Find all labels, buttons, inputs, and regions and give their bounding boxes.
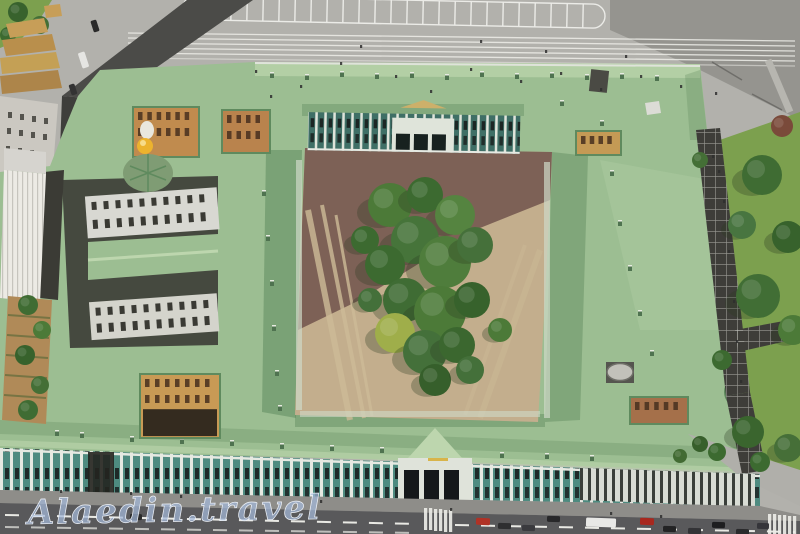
tree-highlight xyxy=(778,438,791,451)
window xyxy=(635,402,640,410)
window xyxy=(185,379,190,387)
window xyxy=(138,112,143,120)
tree-highlight xyxy=(412,182,428,198)
tree-highlight xyxy=(374,189,394,209)
tree-highlight xyxy=(736,420,750,434)
tree-highlight xyxy=(33,378,41,386)
vehicle xyxy=(547,516,560,522)
window xyxy=(166,128,171,136)
west-courtyard xyxy=(62,176,220,348)
vehicle xyxy=(757,523,769,529)
vehicle xyxy=(736,529,749,534)
pedestrian xyxy=(430,90,432,93)
chimney-cap xyxy=(560,100,564,102)
tree-highlight xyxy=(782,319,796,333)
skylight xyxy=(645,101,661,115)
dome-drum xyxy=(140,121,154,139)
window xyxy=(195,379,200,387)
window xyxy=(237,115,242,123)
window xyxy=(246,131,251,139)
tree-highlight xyxy=(710,445,718,453)
pedestrian xyxy=(600,88,602,91)
inner-courtyard xyxy=(295,98,552,422)
window xyxy=(664,402,669,410)
window xyxy=(147,112,152,120)
window xyxy=(185,112,190,120)
lightwell-courtyard xyxy=(630,397,688,424)
window xyxy=(165,395,170,403)
chimney-cap xyxy=(262,190,266,192)
tree-highlight xyxy=(732,215,745,228)
tree-highlight xyxy=(355,230,368,243)
window xyxy=(195,395,200,403)
chimney-cap xyxy=(305,74,309,76)
window xyxy=(205,379,210,387)
window xyxy=(237,131,242,139)
roof-shadow-block xyxy=(589,69,609,93)
tree-highlight xyxy=(460,360,473,373)
tree-highlight xyxy=(21,403,30,412)
pedestrian xyxy=(680,85,682,88)
tree-highlight xyxy=(742,280,762,300)
courtyard-south-facade xyxy=(300,411,540,417)
chimney-cap xyxy=(618,220,622,222)
window xyxy=(175,395,180,403)
chimney-cap xyxy=(480,71,484,73)
tree-highlight xyxy=(459,287,475,303)
window xyxy=(227,131,232,139)
tree-highlight xyxy=(776,225,790,239)
tree-highlight xyxy=(389,284,409,304)
chimney-cap xyxy=(620,73,624,75)
window xyxy=(157,128,162,136)
tree-highlight xyxy=(462,232,478,248)
ribbed-roof-top xyxy=(4,148,46,174)
pedestrian xyxy=(480,40,482,43)
window xyxy=(145,379,150,387)
pedestrian xyxy=(340,62,342,65)
pedestrian xyxy=(395,75,397,78)
vehicle xyxy=(476,518,490,525)
window xyxy=(607,136,612,144)
pedestrian xyxy=(545,50,547,53)
golden-dome xyxy=(137,138,153,154)
pedestrian xyxy=(270,95,272,98)
tree-highlight xyxy=(397,222,419,244)
tree-highlight xyxy=(694,438,701,445)
tree-highlight xyxy=(774,118,784,128)
window xyxy=(175,112,180,120)
pedestrian xyxy=(360,45,362,48)
chimney-cap xyxy=(380,447,384,449)
vehicle xyxy=(688,528,701,534)
chimney-cap xyxy=(340,71,344,73)
chimney-cap xyxy=(130,436,134,438)
chimney-cap xyxy=(610,170,614,172)
tree-highlight xyxy=(380,318,398,336)
pedestrian xyxy=(450,508,452,511)
watermark-text: Alaedin.travel xyxy=(24,488,322,533)
tree-highlight xyxy=(426,243,449,266)
pedestrian xyxy=(740,380,742,383)
chimney-cap xyxy=(655,75,659,77)
window xyxy=(590,136,595,144)
pedestrian xyxy=(723,200,725,203)
tree-highlight xyxy=(11,5,20,14)
window xyxy=(645,402,650,410)
vehicle xyxy=(498,523,511,529)
tree-highlight xyxy=(18,348,27,357)
chimney-cap xyxy=(270,280,274,282)
tree-highlight xyxy=(675,451,681,457)
chimney-cap xyxy=(230,440,234,442)
chimney-cap xyxy=(375,73,379,75)
courtyard-west-facade xyxy=(296,160,302,410)
window xyxy=(256,115,261,123)
tree-highlight xyxy=(444,332,460,348)
tree-highlight xyxy=(694,154,701,161)
pedestrian xyxy=(640,75,642,78)
chimney-cap xyxy=(545,453,549,455)
window xyxy=(185,128,190,136)
aerial-photo-canvas: Alaedin.travel xyxy=(0,0,800,534)
window xyxy=(175,379,180,387)
pedestrian xyxy=(715,92,717,95)
tree-highlight xyxy=(21,298,30,307)
tree-highlight xyxy=(35,323,43,331)
vehicle xyxy=(663,526,676,532)
window xyxy=(175,128,180,136)
pedestrian xyxy=(660,515,662,518)
pedestrian xyxy=(728,250,730,253)
chimney-cap xyxy=(445,74,449,76)
window xyxy=(166,112,171,120)
window xyxy=(155,395,160,403)
chimney-cap xyxy=(330,445,334,447)
chimney-cap xyxy=(410,72,414,74)
tree-highlight xyxy=(421,293,444,316)
tree-highlight xyxy=(361,291,372,302)
window xyxy=(205,395,210,403)
tree-highlight xyxy=(423,368,437,382)
chimney-cap xyxy=(590,455,594,457)
window xyxy=(227,115,232,123)
chimney-cap xyxy=(585,74,589,76)
window xyxy=(673,402,678,410)
pedestrian xyxy=(470,68,472,71)
window xyxy=(157,112,162,120)
pedestrian xyxy=(255,70,257,73)
pedestrian xyxy=(736,340,738,343)
window xyxy=(599,136,604,144)
window xyxy=(165,379,170,387)
chimney-cap xyxy=(272,325,276,327)
gold-highlight xyxy=(140,140,146,146)
chimney-cap xyxy=(515,73,519,75)
vehicle xyxy=(522,525,535,531)
chimney-cap xyxy=(55,430,59,432)
chimney-cap xyxy=(650,350,654,352)
pedestrian xyxy=(560,72,562,75)
vehicle xyxy=(640,518,654,525)
tree-highlight xyxy=(491,321,502,332)
chimney-cap xyxy=(280,443,284,445)
window xyxy=(185,395,190,403)
window xyxy=(246,115,251,123)
chimney-cap xyxy=(550,72,554,74)
pedestrian xyxy=(625,55,627,58)
chimney-cap xyxy=(638,310,642,312)
pedestrian xyxy=(520,80,522,83)
vehicle xyxy=(586,517,616,527)
window xyxy=(256,131,261,139)
pedestrian xyxy=(712,155,714,158)
tree-highlight xyxy=(440,200,458,218)
aerial-photo: Alaedin.travel xyxy=(0,0,800,534)
lightwell-shadow xyxy=(143,409,217,436)
chimney-cap xyxy=(278,405,282,407)
courtyard-east-facade xyxy=(544,162,550,418)
tree-highlight xyxy=(409,336,429,356)
pedestrian xyxy=(610,512,612,515)
window xyxy=(654,402,659,410)
window xyxy=(155,379,160,387)
vehicle xyxy=(712,522,725,528)
pedestrian xyxy=(300,85,302,88)
window xyxy=(145,395,150,403)
central-gate xyxy=(398,452,472,506)
pedestrian xyxy=(733,300,735,303)
window xyxy=(581,136,586,144)
grey-dome xyxy=(607,364,633,381)
pedestrian xyxy=(718,170,720,173)
chimney-cap xyxy=(500,452,504,454)
tree-highlight xyxy=(370,250,388,268)
chimney-cap xyxy=(80,432,84,434)
tree-highlight xyxy=(715,353,724,362)
chimney-cap xyxy=(600,120,604,122)
tree-highlight xyxy=(747,160,765,178)
tree-highlight xyxy=(753,455,762,464)
ribbed-skylight-roof xyxy=(0,170,46,302)
chimney-cap xyxy=(628,265,632,267)
chimney-cap xyxy=(266,235,270,237)
chimney-cap xyxy=(270,72,274,74)
chimney-cap xyxy=(275,370,279,372)
